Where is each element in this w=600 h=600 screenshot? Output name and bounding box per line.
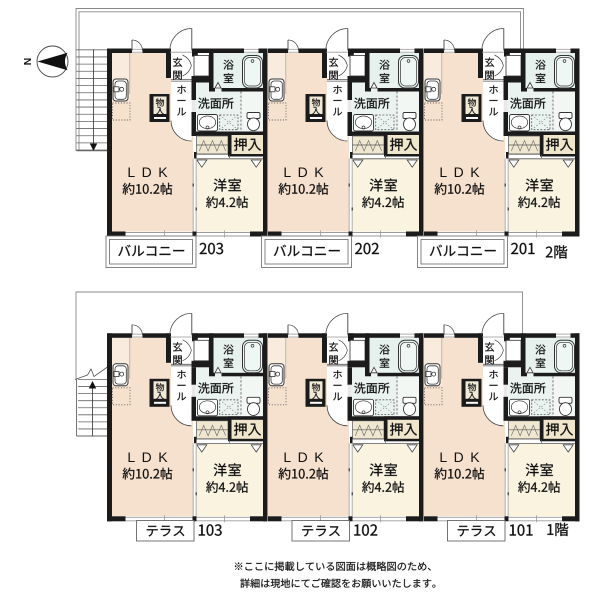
svg-text:LDK: LDK [127, 164, 174, 180]
svg-text:N: N [21, 58, 33, 66]
svg-text:LDK: LDK [283, 449, 330, 465]
svg-text:LDK: LDK [439, 449, 486, 465]
svg-text:LDK: LDK [127, 449, 174, 465]
svg-text:LDK: LDK [283, 164, 330, 180]
svg-text:LDK: LDK [439, 164, 486, 180]
